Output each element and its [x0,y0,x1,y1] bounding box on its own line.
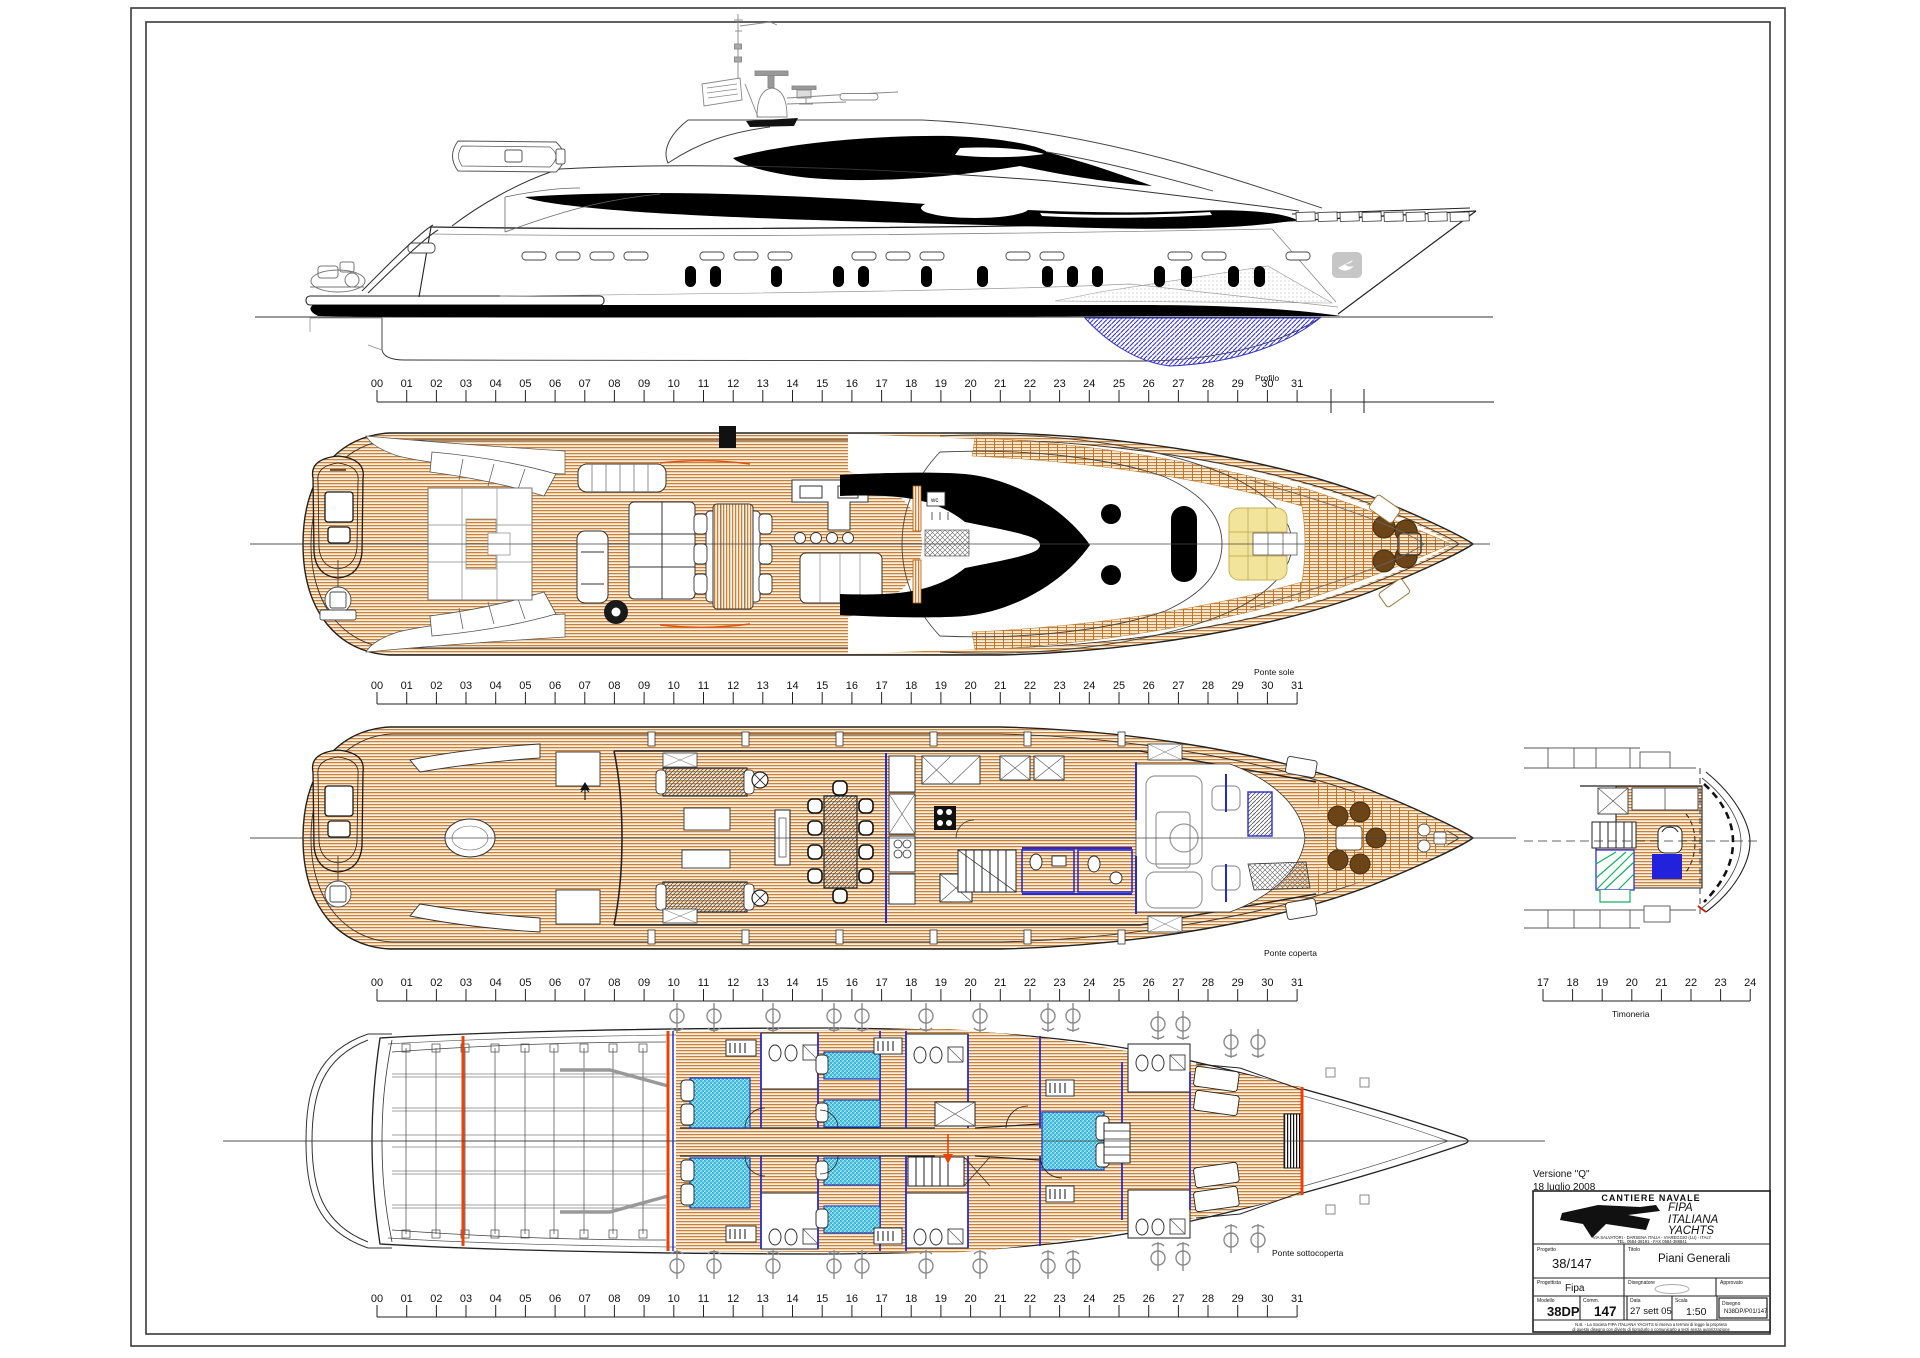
svg-text:Disegno: Disegno [1722,1301,1741,1307]
svg-text:27: 27 [1172,378,1184,390]
svg-text:00: 00 [371,378,383,390]
svg-text:30: 30 [1261,378,1273,390]
svg-text:22: 22 [1024,977,1036,989]
svg-text:26: 26 [1143,977,1155,989]
svg-text:13: 13 [757,378,769,390]
svg-text:21: 21 [994,977,1006,989]
svg-text:00: 00 [371,977,383,989]
svg-text:31: 31 [1291,680,1303,692]
svg-text:19: 19 [1596,977,1608,989]
svg-text:31: 31 [1291,1293,1303,1305]
svg-text:23: 23 [1053,1293,1065,1305]
svg-text:20: 20 [964,680,976,692]
svg-text:Data: Data [1630,1298,1641,1304]
svg-text:27: 27 [1172,977,1184,989]
svg-text:24: 24 [1083,378,1095,390]
svg-text:Ponte sole: Ponte sole [1254,667,1294,677]
svg-text:17: 17 [1537,977,1549,989]
svg-text:Scala: Scala [1675,1298,1688,1304]
svg-text:25: 25 [1113,1293,1125,1305]
svg-text:01: 01 [401,680,413,692]
svg-text:22: 22 [1024,1293,1036,1305]
svg-text:13: 13 [757,1293,769,1305]
svg-text:17: 17 [875,680,887,692]
svg-text:30: 30 [1261,680,1273,692]
svg-text:31: 31 [1291,977,1303,989]
svg-text:25: 25 [1113,378,1125,390]
svg-text:23: 23 [1053,680,1065,692]
svg-text:TEL. 0584-38191 - FAX 0584-388: TEL. 0584-38191 - FAX 0584-388841 [1617,1239,1688,1244]
svg-text:08: 08 [608,680,620,692]
svg-text:31: 31 [1291,378,1303,390]
svg-text:FIPA: FIPA [1668,1202,1693,1214]
svg-text:Piani Generali: Piani Generali [1658,1253,1730,1265]
svg-text:14: 14 [786,680,798,692]
svg-text:27: 27 [1172,1293,1184,1305]
svg-text:03: 03 [460,378,472,390]
svg-text:08: 08 [608,1293,620,1305]
svg-text:di questo disegno con divieto: di questo disegno con divieto di riprodu… [1572,1327,1730,1332]
svg-text:29: 29 [1232,1293,1244,1305]
svg-text:14: 14 [786,378,798,390]
svg-text:147: 147 [1594,1304,1617,1319]
svg-text:Approvato: Approvato [1720,1280,1743,1286]
svg-text:38/147: 38/147 [1552,1256,1592,1271]
svg-text:18: 18 [905,1293,917,1305]
svg-text:24: 24 [1083,977,1095,989]
svg-text:wc: wc [930,498,938,504]
svg-text:26: 26 [1143,378,1155,390]
svg-text:13: 13 [757,977,769,989]
svg-text:28: 28 [1202,1293,1214,1305]
svg-text:07: 07 [579,977,591,989]
svg-text:01: 01 [401,378,413,390]
svg-text:02: 02 [430,977,442,989]
svg-text:18: 18 [905,680,917,692]
svg-text:27: 27 [1172,680,1184,692]
svg-text:07: 07 [579,1293,591,1305]
svg-text:06: 06 [549,977,561,989]
svg-text:Timoneria: Timoneria [1612,1009,1650,1019]
svg-text:28: 28 [1202,680,1214,692]
svg-text:08: 08 [608,378,620,390]
svg-text:07: 07 [579,680,591,692]
svg-text:04: 04 [490,1293,502,1305]
svg-text:17: 17 [875,1293,887,1305]
svg-text:12: 12 [727,977,739,989]
svg-text:22: 22 [1024,680,1036,692]
svg-text:25: 25 [1113,977,1125,989]
svg-text:16: 16 [846,680,858,692]
svg-text:23: 23 [1714,977,1726,989]
svg-text:23: 23 [1053,378,1065,390]
svg-text:Versione "Q": Versione "Q" [1533,1169,1590,1180]
svg-text:24: 24 [1083,1293,1095,1305]
svg-text:05: 05 [519,680,531,692]
svg-text:21: 21 [994,1293,1006,1305]
svg-text:Titolo: Titolo [1628,1247,1640,1253]
svg-text:24: 24 [1083,680,1095,692]
svg-text:12: 12 [727,378,739,390]
svg-text:19: 19 [935,680,947,692]
svg-text:21: 21 [994,378,1006,390]
svg-text:18: 18 [905,977,917,989]
svg-text:29: 29 [1232,680,1244,692]
svg-text:01: 01 [401,1293,413,1305]
svg-text:27 sett 05: 27 sett 05 [1630,1306,1672,1317]
svg-text:09: 09 [638,378,650,390]
svg-text:05: 05 [519,1293,531,1305]
svg-text:24: 24 [1744,977,1756,989]
svg-text:Ponte sottocoperta: Ponte sottocoperta [1272,1248,1344,1258]
svg-text:20: 20 [964,977,976,989]
svg-text:N38DP/P01/147: N38DP/P01/147 [1724,1309,1768,1315]
svg-text:05: 05 [519,378,531,390]
svg-text:17: 17 [875,378,887,390]
svg-text:Progettista: Progettista [1537,1280,1561,1286]
svg-text:07: 07 [579,378,591,390]
svg-text:1:50: 1:50 [1686,1306,1707,1318]
svg-text:18: 18 [1566,977,1578,989]
svg-text:05: 05 [519,977,531,989]
svg-text:16: 16 [846,977,858,989]
svg-text:20: 20 [1626,977,1638,989]
svg-text:26: 26 [1143,1293,1155,1305]
svg-text:19: 19 [935,977,947,989]
svg-text:01: 01 [401,977,413,989]
svg-text:15: 15 [816,680,828,692]
svg-text:Ponte coperta: Ponte coperta [1264,948,1317,958]
svg-text:25: 25 [1113,680,1125,692]
svg-text:28: 28 [1202,977,1214,989]
svg-text:09: 09 [638,977,650,989]
svg-text:12: 12 [727,1293,739,1305]
svg-text:15: 15 [816,1293,828,1305]
svg-text:03: 03 [460,680,472,692]
svg-text:15: 15 [816,977,828,989]
svg-text:19: 19 [935,1293,947,1305]
svg-text:02: 02 [430,378,442,390]
svg-text:Fipa: Fipa [1565,1283,1585,1294]
svg-text:30: 30 [1261,1293,1273,1305]
svg-text:10: 10 [668,977,680,989]
svg-text:06: 06 [549,378,561,390]
svg-text:Progetto: Progetto [1537,1247,1556,1253]
svg-text:10: 10 [668,680,680,692]
svg-text:29: 29 [1232,378,1244,390]
svg-text:10: 10 [668,378,680,390]
svg-text:12: 12 [727,680,739,692]
svg-text:10: 10 [668,1293,680,1305]
svg-text:15: 15 [816,378,828,390]
svg-text:22: 22 [1685,977,1697,989]
svg-text:21: 21 [1655,977,1667,989]
svg-text:09: 09 [638,1293,650,1305]
svg-text:28: 28 [1202,378,1214,390]
svg-text:16: 16 [846,378,858,390]
svg-text:14: 14 [786,1293,798,1305]
svg-text:11: 11 [698,378,709,390]
svg-text:26: 26 [1143,680,1155,692]
svg-text:06: 06 [549,680,561,692]
svg-text:06: 06 [549,1293,561,1305]
svg-text:18: 18 [905,378,917,390]
svg-text:00: 00 [371,1293,383,1305]
svg-text:11: 11 [698,1293,709,1305]
svg-text:17: 17 [875,977,887,989]
svg-text:04: 04 [490,680,502,692]
svg-text:30: 30 [1261,977,1273,989]
svg-text:04: 04 [490,378,502,390]
svg-text:00: 00 [371,680,383,692]
svg-text:21: 21 [994,680,1006,692]
svg-text:03: 03 [460,977,472,989]
svg-text:38DP: 38DP [1547,1304,1580,1319]
svg-text:19: 19 [935,378,947,390]
svg-text:11: 11 [698,977,709,989]
svg-text:08: 08 [608,977,620,989]
svg-text:14: 14 [786,977,798,989]
svg-text:04: 04 [490,977,502,989]
svg-text:23: 23 [1053,977,1065,989]
svg-text:20: 20 [964,378,976,390]
svg-text:13: 13 [757,680,769,692]
svg-text:11: 11 [698,680,709,692]
svg-text:03: 03 [460,1293,472,1305]
svg-text:02: 02 [430,680,442,692]
svg-text:20: 20 [964,1293,976,1305]
svg-text:29: 29 [1232,977,1244,989]
svg-text:09: 09 [638,680,650,692]
svg-text:22: 22 [1024,378,1036,390]
svg-text:Disegnatore: Disegnatore [1628,1280,1655,1286]
svg-text:16: 16 [846,1293,858,1305]
svg-text:02: 02 [430,1293,442,1305]
